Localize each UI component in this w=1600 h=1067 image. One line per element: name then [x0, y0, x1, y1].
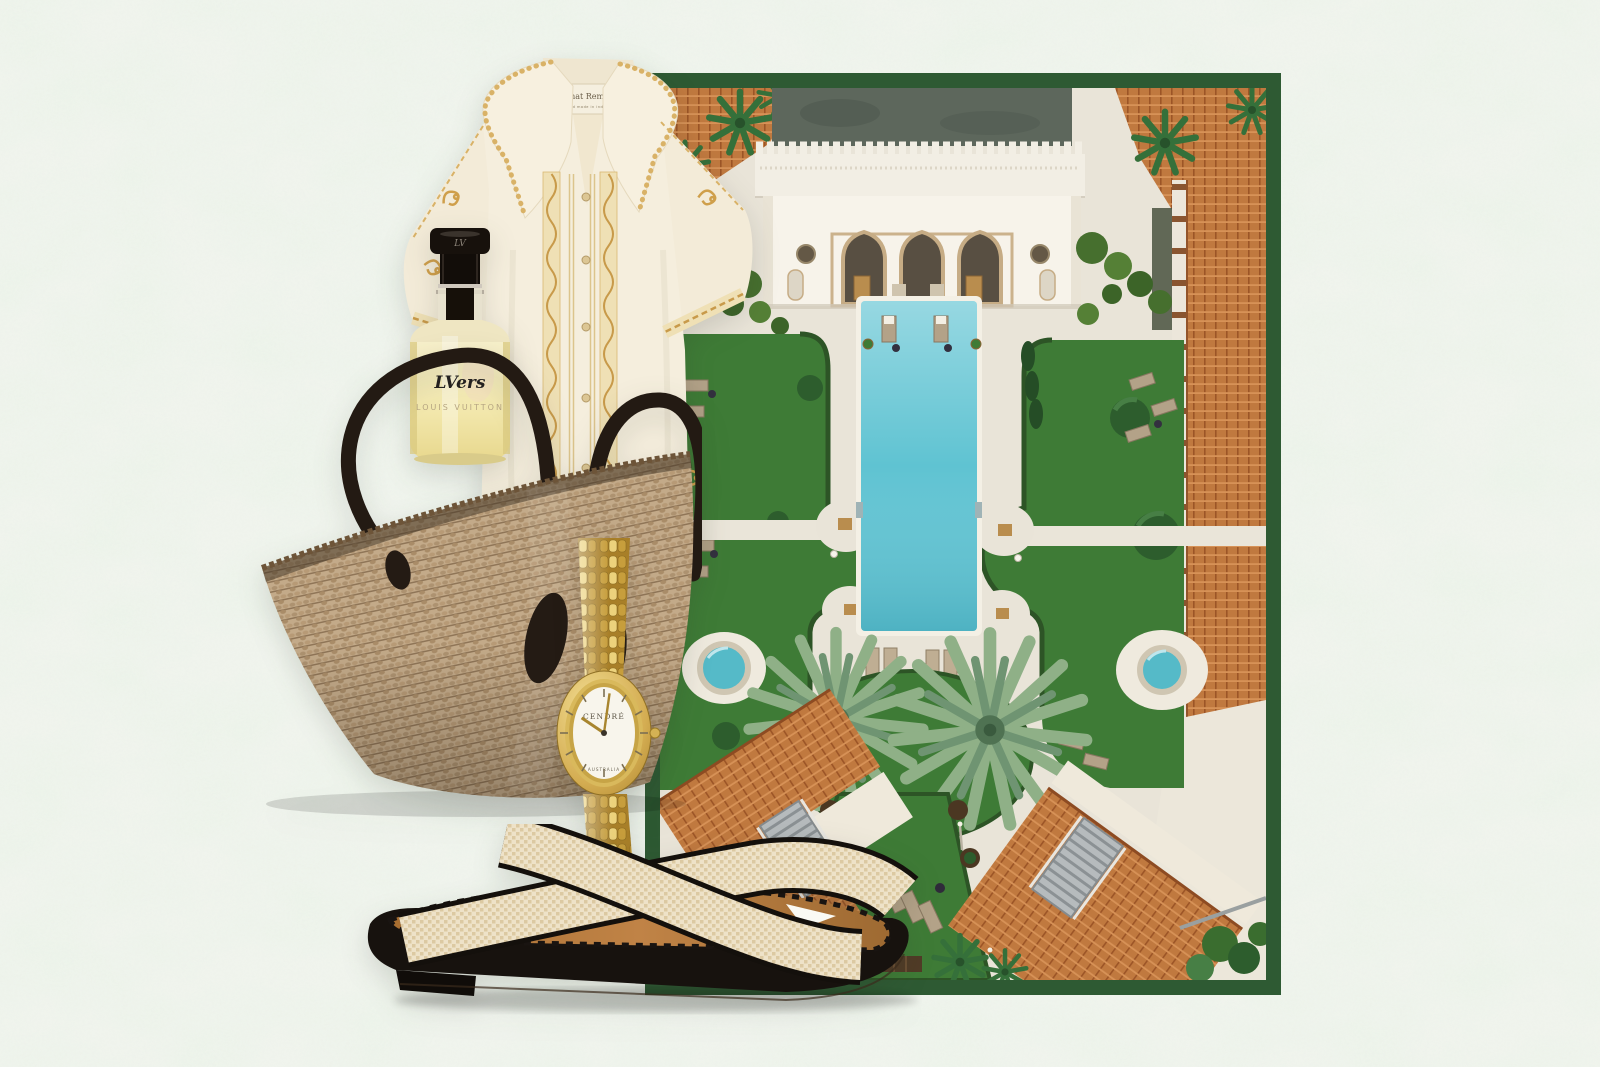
bottle-cap: LV: [430, 228, 490, 284]
swimming-pool: [856, 296, 982, 636]
spa-right: [1116, 630, 1208, 710]
gold-watch: CENDRÉ AUSTRALIA: [538, 538, 673, 868]
cap-monogram: LV: [453, 239, 467, 249]
right-cross-path: [1024, 526, 1266, 546]
woven-slide-sandal: [356, 824, 922, 1020]
watch-crown: [650, 728, 660, 738]
watch-case: CENDRÉ AUSTRALIA: [557, 671, 651, 795]
watch-origin: AUSTRALIA: [588, 767, 620, 772]
glass-stopper: [446, 288, 474, 324]
watch-brand: CENDRÉ: [583, 712, 625, 721]
main-building: [755, 88, 1085, 310]
